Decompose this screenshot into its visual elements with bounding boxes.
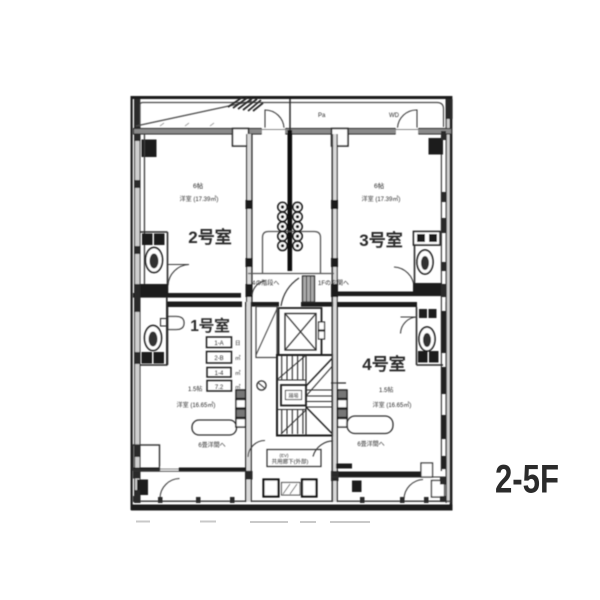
svg-text:2-B: 2-B — [214, 356, 223, 362]
svg-text:1-A: 1-A — [214, 341, 223, 347]
svg-text:日: 日 — [235, 340, 241, 347]
svg-text:4号室: 4号室 — [362, 354, 405, 374]
svg-text:2-5F: 2-5F — [495, 458, 559, 502]
svg-text:㎡: ㎡ — [235, 369, 241, 377]
svg-text:踊場: 踊場 — [288, 393, 298, 400]
svg-text:6畳洋間へ: 6畳洋間へ — [198, 441, 225, 449]
svg-text:(EV): (EV) — [280, 453, 290, 458]
svg-text:7.2: 7.2 — [215, 385, 224, 391]
svg-text:共用廊下(外部): 共用廊下(外部) — [272, 458, 309, 466]
svg-text:1.5帖: 1.5帖 — [188, 385, 202, 393]
svg-text:2号室: 2号室 — [188, 227, 231, 247]
svg-text:6帖: 6帖 — [374, 181, 385, 190]
svg-text:6畳洋間へ: 6畳洋間へ — [357, 440, 384, 448]
svg-text:Pa: Pa — [318, 113, 326, 119]
svg-text:1号室: 1号室 — [190, 316, 230, 335]
svg-text:3号室: 3号室 — [359, 230, 402, 250]
svg-text:㎡: ㎡ — [235, 354, 241, 362]
svg-text:洋室 (17.39㎡): 洋室 (17.39㎡) — [180, 195, 219, 203]
svg-text:1-4: 1-4 — [215, 371, 224, 377]
svg-text:洋室 (16.65㎡): 洋室 (16.65㎡) — [177, 401, 216, 409]
svg-text:WD: WD — [389, 113, 400, 119]
svg-text:6帖: 6帖 — [193, 181, 204, 190]
svg-text:1.5帖: 1.5帖 — [379, 386, 393, 394]
svg-text:洋室 (16.65㎡): 洋室 (16.65㎡) — [373, 401, 412, 409]
svg-text:洋室 (17.39㎡): 洋室 (17.39㎡) — [362, 195, 401, 203]
